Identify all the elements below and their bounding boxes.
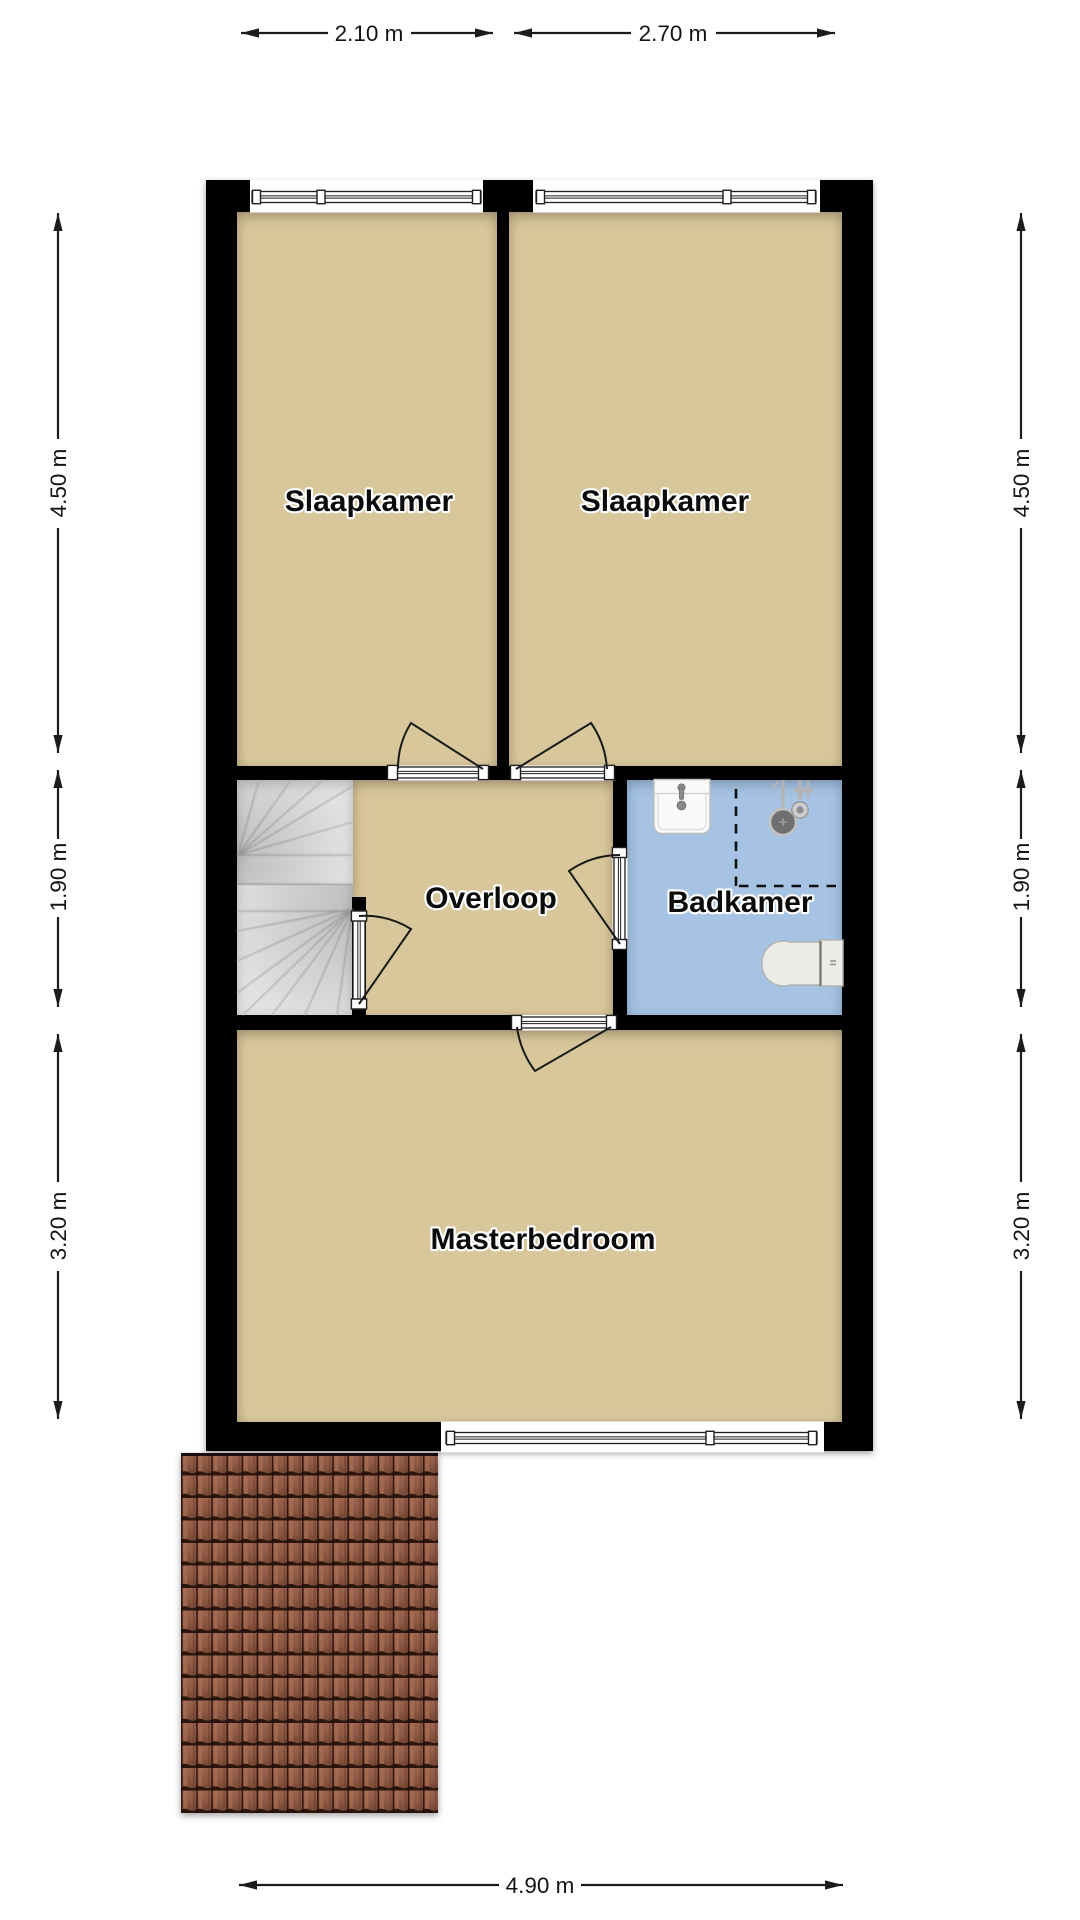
svg-text:4.90 m: 4.90 m — [506, 1873, 575, 1898]
svg-text:4.50 m: 4.50 m — [1009, 449, 1034, 518]
svg-text:1.90 m: 1.90 m — [1009, 843, 1034, 912]
svg-text:4.50 m: 4.50 m — [46, 449, 71, 518]
svg-text:2.10 m: 2.10 m — [335, 21, 404, 46]
svg-text:Overloop: Overloop — [425, 882, 557, 915]
svg-text:1.90 m: 1.90 m — [46, 843, 71, 912]
svg-text:Masterbedroom: Masterbedroom — [430, 1223, 655, 1256]
svg-text:3.20 m: 3.20 m — [1009, 1192, 1034, 1261]
svg-text:Slaapkamer: Slaapkamer — [285, 485, 454, 518]
svg-text:3.20 m: 3.20 m — [46, 1192, 71, 1261]
svg-text:Slaapkamer: Slaapkamer — [581, 485, 750, 518]
svg-text:Badkamer: Badkamer — [667, 886, 812, 919]
svg-text:2.70 m: 2.70 m — [639, 21, 708, 46]
